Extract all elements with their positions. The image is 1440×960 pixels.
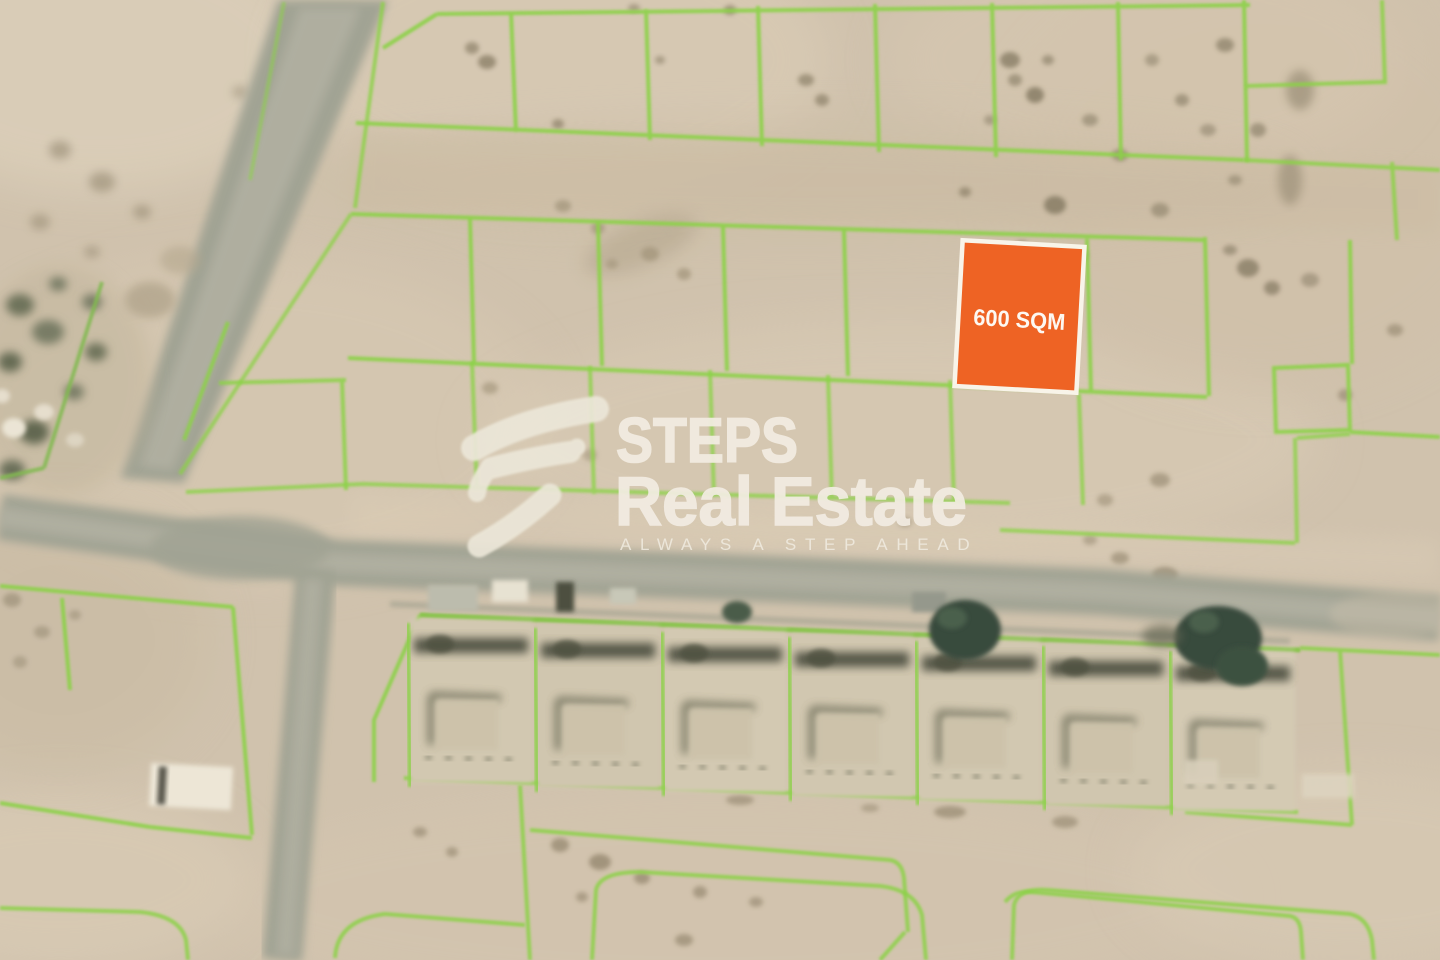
- svg-text:ALWAYS A STEP AHEAD: ALWAYS A STEP AHEAD: [620, 535, 978, 554]
- svg-text:600 SQM: 600 SQM: [973, 304, 1066, 335]
- svg-text:Real Estate: Real Estate: [615, 463, 967, 540]
